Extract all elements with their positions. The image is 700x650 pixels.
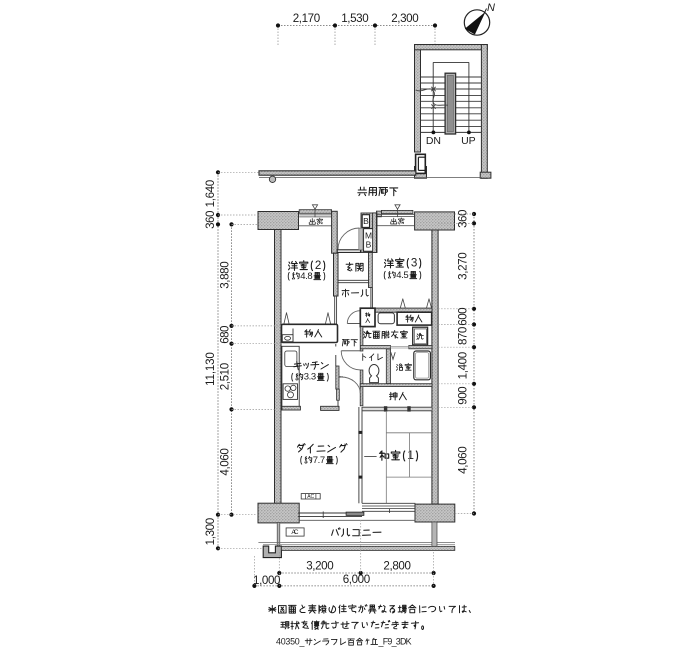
svg-text:600: 600: [457, 307, 470, 325]
svg-text:1,640: 1,640: [204, 180, 217, 208]
svg-text:900: 900: [457, 386, 470, 404]
svg-text:AC: AC: [307, 494, 314, 500]
svg-text:2,300: 2,300: [391, 12, 419, 25]
svg-text:1: 1: [407, 448, 414, 462]
svg-text:N: N: [487, 2, 495, 14]
svg-text:4,060: 4,060: [457, 446, 470, 474]
svg-text:6,000: 6,000: [343, 573, 371, 586]
svg-text:3: 3: [411, 256, 417, 269]
svg-text:_F9_3DK: _F9_3DK: [378, 636, 412, 646]
svg-text:UP: UP: [461, 135, 476, 147]
svg-text:870: 870: [457, 327, 470, 345]
svg-text:3,200: 3,200: [306, 560, 334, 573]
svg-text:1,300: 1,300: [204, 518, 217, 546]
svg-text:1,400: 1,400: [457, 352, 470, 380]
svg-text:3,270: 3,270: [457, 252, 470, 280]
svg-text:4.8: 4.8: [300, 271, 313, 282]
svg-text:1,000: 1,000: [253, 574, 281, 587]
svg-text:AC: AC: [291, 529, 298, 536]
svg-text:2,510: 2,510: [218, 363, 231, 391]
svg-text:7.7: 7.7: [313, 455, 326, 466]
svg-text:680: 680: [218, 326, 231, 344]
svg-text:1,530: 1,530: [341, 12, 369, 25]
svg-text:B: B: [366, 239, 372, 249]
svg-text:4,060: 4,060: [218, 448, 231, 476]
svg-text:2,170: 2,170: [293, 12, 321, 25]
svg-text:360: 360: [204, 211, 217, 229]
svg-text:360: 360: [457, 210, 470, 228]
svg-text:11,130: 11,130: [204, 352, 217, 386]
svg-text:2,800: 2,800: [383, 560, 411, 573]
svg-text:3,880: 3,880: [218, 261, 231, 289]
svg-text:4.5: 4.5: [396, 270, 409, 281]
svg-text:3.3: 3.3: [304, 372, 317, 383]
svg-text:B: B: [363, 216, 369, 226]
svg-text:DN: DN: [426, 135, 441, 147]
svg-text:40350_: 40350_: [276, 636, 305, 646]
svg-text:2: 2: [315, 259, 321, 272]
